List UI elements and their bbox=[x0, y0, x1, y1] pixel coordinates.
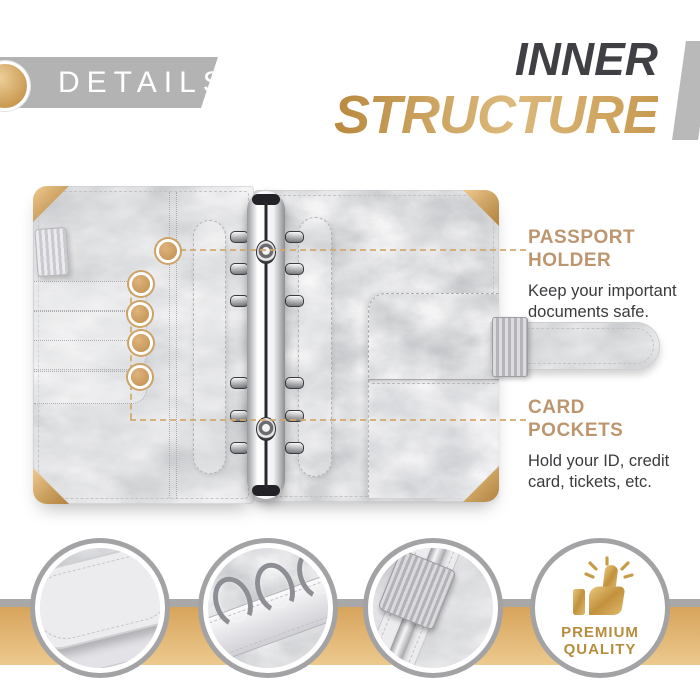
stitching bbox=[372, 383, 495, 384]
card-pockets-body: Hold your ID, credit card, tickets, etc. bbox=[528, 451, 700, 493]
product-infographic: DETAILS INNER STRUCTURE bbox=[0, 0, 700, 700]
six-ring-mechanism bbox=[247, 191, 285, 499]
title-line-inner: INNER bbox=[334, 36, 658, 82]
binder-rings-closeup-photo bbox=[203, 543, 333, 673]
mechanism-screw bbox=[256, 240, 276, 264]
callout-marker bbox=[132, 334, 150, 352]
card-pocket bbox=[368, 379, 499, 498]
premium-quality-label: PREMIUM QUALITY bbox=[540, 624, 660, 658]
callout-marker bbox=[132, 275, 150, 293]
callout-line-card bbox=[130, 419, 526, 421]
passport-holder-title: PASSPORT HOLDER bbox=[528, 226, 700, 272]
callout-marker bbox=[131, 368, 149, 386]
passport-holder-callout: PASSPORT HOLDER Keep your important docu… bbox=[528, 226, 700, 323]
pen-holder-closeup-photo bbox=[368, 543, 498, 673]
stitched-seam bbox=[176, 192, 177, 498]
callout-marker bbox=[159, 242, 177, 260]
page-title: INNER STRUCTURE bbox=[334, 36, 658, 142]
callout-line-passport bbox=[180, 249, 526, 251]
right-vertical-slot-pocket bbox=[298, 217, 332, 477]
left-vertical-slot-pocket bbox=[193, 220, 226, 474]
title-line-structure: STRUCTURE bbox=[334, 88, 658, 142]
binder-ring bbox=[285, 295, 304, 307]
stitched-seam bbox=[169, 192, 170, 498]
binder-ring bbox=[285, 442, 304, 454]
corner-accent-bar bbox=[672, 41, 700, 140]
pocket-closeup-photo bbox=[35, 543, 165, 673]
elastic-band bbox=[492, 317, 528, 377]
details-banner: DETAILS bbox=[0, 57, 218, 108]
details-label: DETAILS bbox=[58, 66, 230, 100]
card-pockets-title: CARD POCKETS bbox=[528, 396, 700, 442]
passport-holder-body: Keep your important documents safe. bbox=[528, 281, 700, 323]
callout-marker bbox=[131, 305, 149, 323]
binder-ring bbox=[285, 263, 304, 275]
card-pockets-callout: CARD POCKETS Hold your ID, credit card, … bbox=[528, 396, 700, 493]
premium-quality-badge: PREMIUM QUALITY bbox=[535, 543, 665, 673]
thumbs-up-icon bbox=[566, 556, 634, 620]
pen-loop bbox=[34, 227, 69, 277]
binder-ring bbox=[285, 377, 304, 389]
binder-ring bbox=[285, 231, 304, 243]
callout-line-card-vertical bbox=[130, 288, 132, 419]
